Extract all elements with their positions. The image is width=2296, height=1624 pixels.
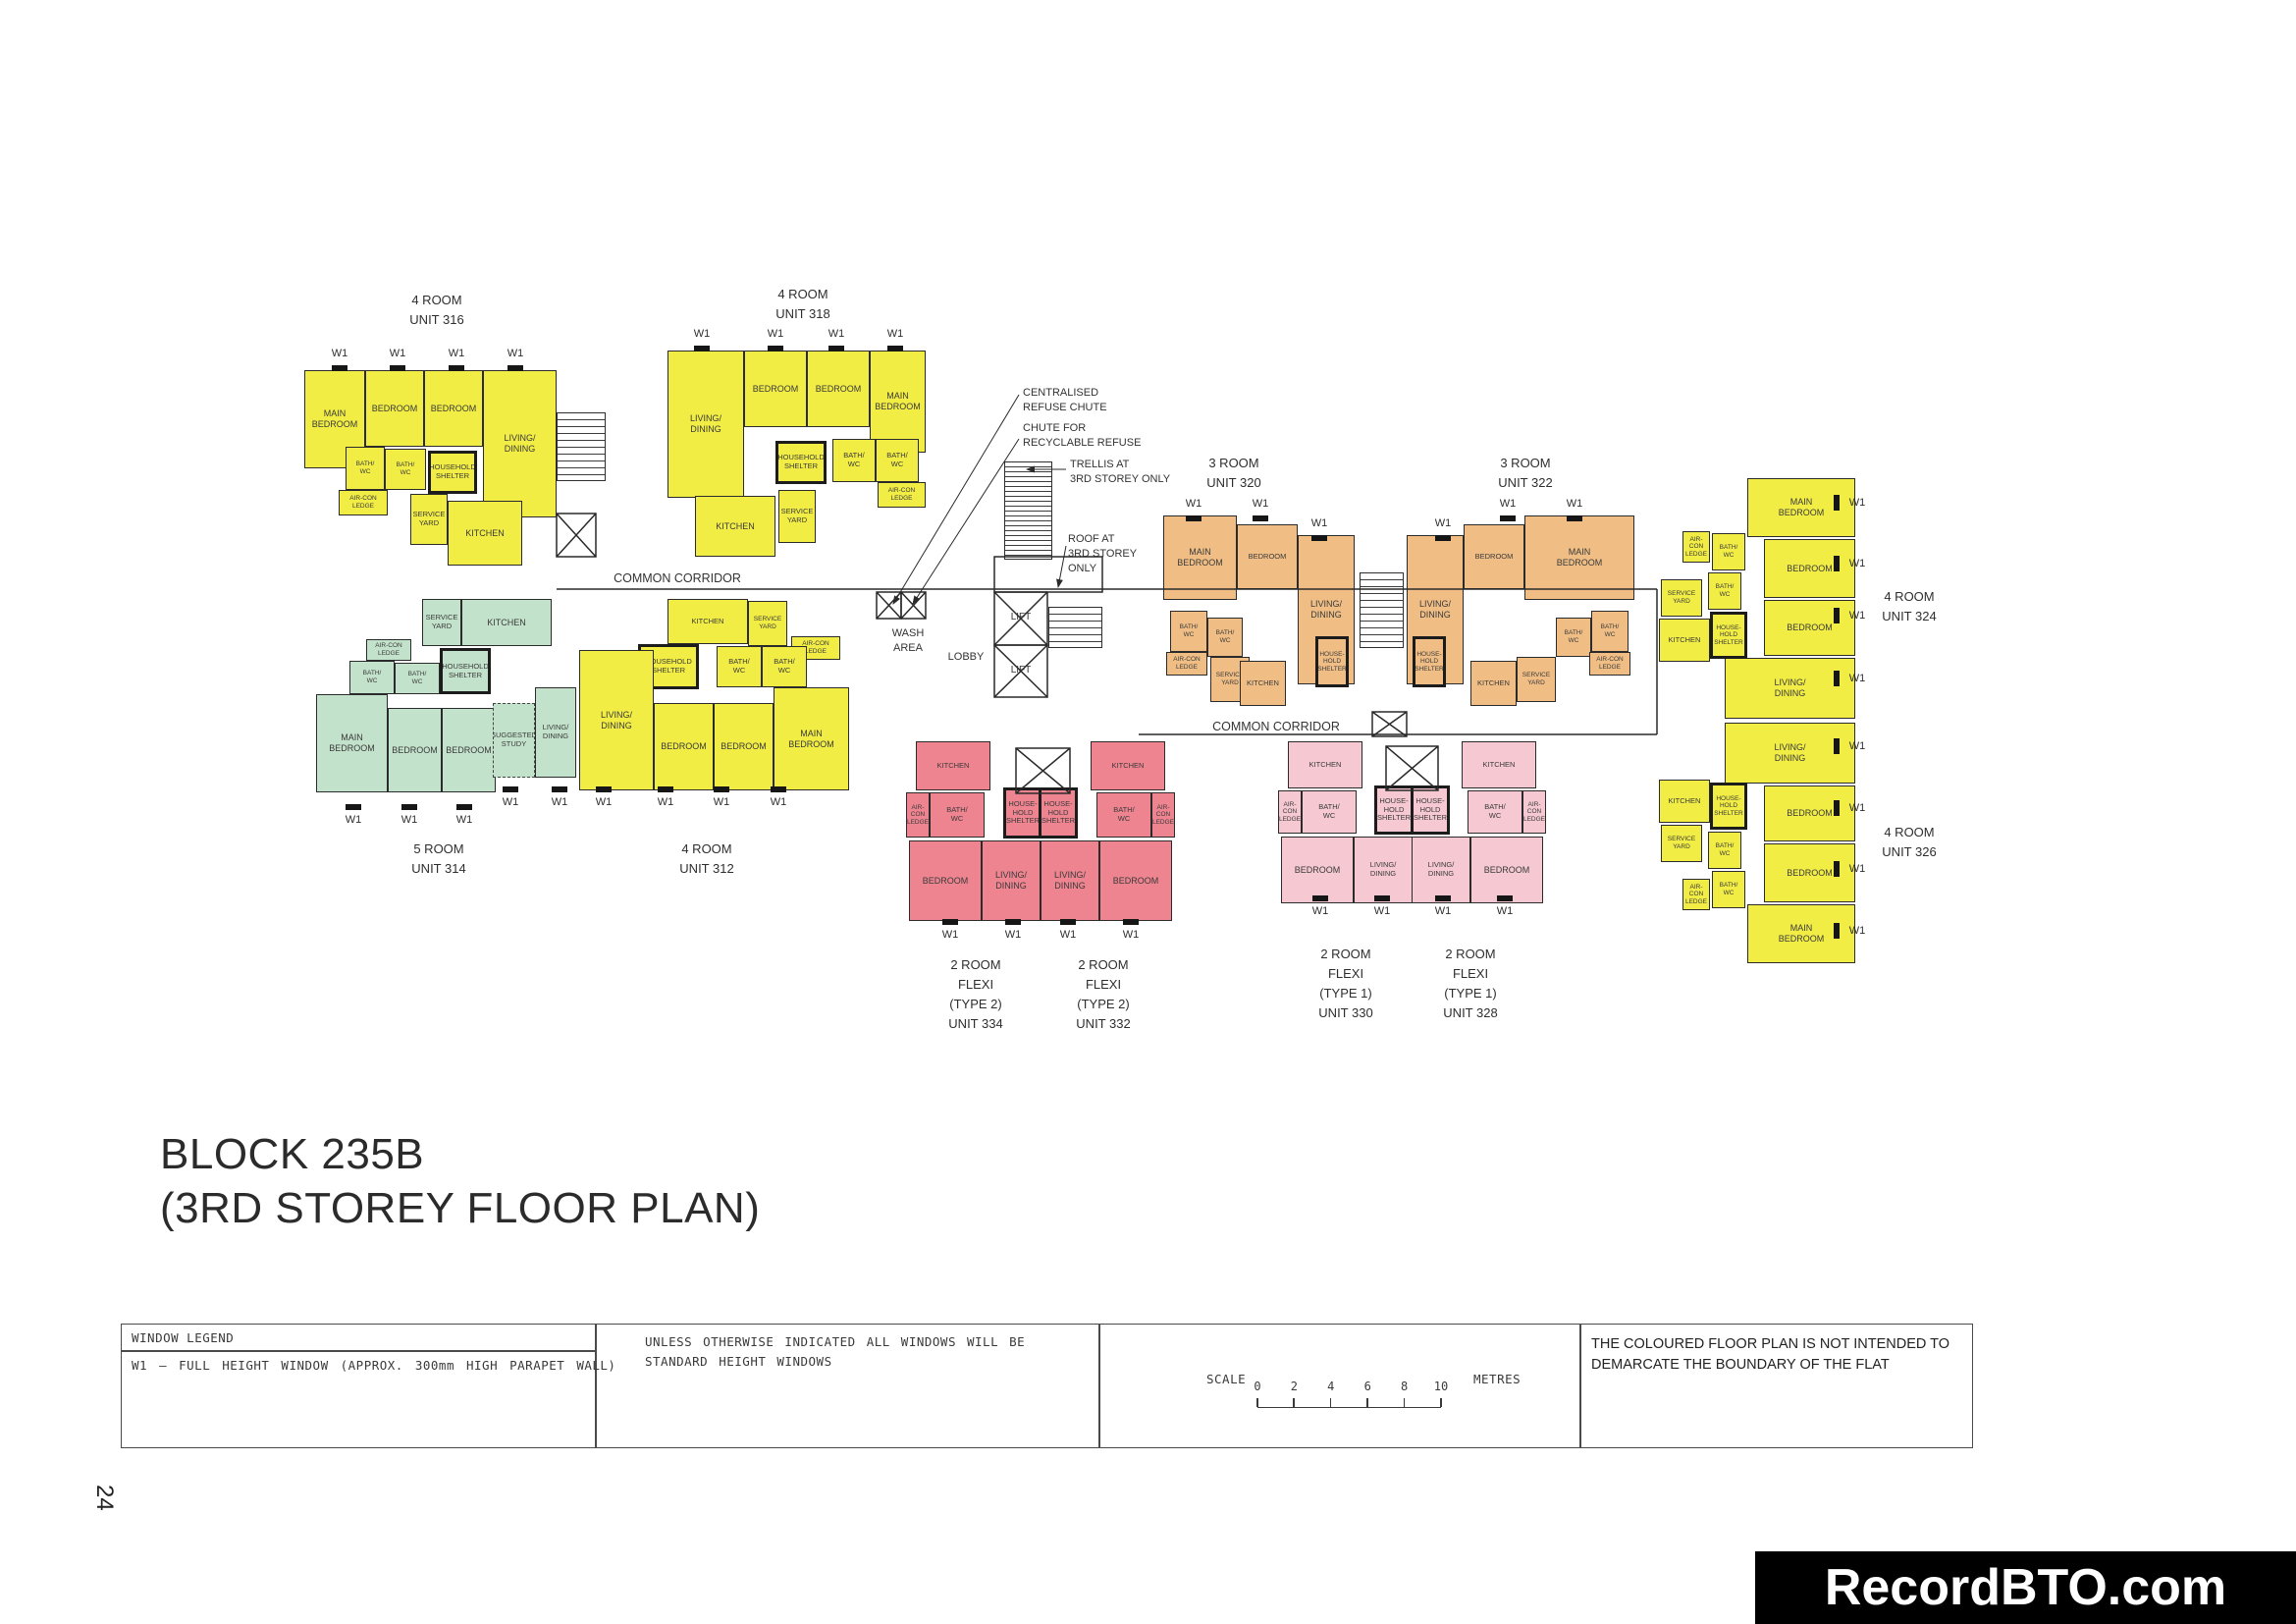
household-shelter-room: HOUSEHOLD SHELTER: [440, 648, 491, 694]
table-divider: [595, 1325, 597, 1447]
air-con-ledge-room: AIR- CON LEDGE: [906, 792, 930, 838]
bedroom-room: BEDROOM: [654, 703, 714, 790]
window-wall-tick: [390, 365, 405, 371]
w1-window-label: W1: [1123, 929, 1140, 941]
annotation-recyclable-refuse-chute: CHUTE FOR RECYCLABLE REFUSE: [1023, 421, 1141, 451]
bath-wc-room: BATH/ WC: [1556, 618, 1591, 657]
room-label: KITCHEN: [937, 762, 970, 771]
window-wall-tick: [1500, 515, 1516, 521]
bath-wc-room: BATH/ WC: [832, 439, 876, 482]
w1-window-label: W1: [1312, 905, 1329, 917]
service-yard-room: SERVICE YARD: [748, 601, 787, 646]
w1-window-label: W1: [771, 796, 787, 808]
window-wall-tick: [1834, 923, 1840, 939]
room-label: BATH/ WC: [1484, 803, 1506, 821]
service-shaft: [1386, 746, 1438, 790]
room-label: BATH/ WC: [1720, 882, 1738, 896]
w1-window-label: W1: [332, 348, 348, 359]
w1-window-label: W1: [346, 814, 362, 826]
room-label: HOUSE- HOLD SHELTER: [1414, 797, 1447, 824]
staircase: [1360, 572, 1404, 648]
w1-window-label: W1: [1849, 863, 1866, 875]
living-dining-room: LIVING/ DINING: [982, 840, 1041, 921]
window-wall-tick: [714, 786, 729, 792]
room-label: BATH/ WC: [728, 658, 750, 676]
window-wall-tick: [507, 365, 523, 371]
room-label: LIVING/ DINING: [1428, 861, 1455, 879]
room-label: SERVICE YARD: [781, 508, 814, 525]
room-label: LIVING/ DINING: [504, 433, 535, 454]
bath-wc-room: BATH/ WC: [762, 646, 807, 687]
annotation-trellis: TRELLIS AT 3RD STOREY ONLY: [1070, 458, 1170, 487]
window-legend-item: W1 – FULL HEIGHT WINDOW (APPROX. 300mm H…: [132, 1358, 615, 1373]
room-label: AIR-CON LEDGE: [1683, 536, 1709, 559]
bedroom-room: BEDROOM: [1464, 524, 1524, 589]
scale-tick-number: 4: [1327, 1380, 1334, 1393]
window-wall-tick: [1834, 608, 1840, 623]
scale-tick: [1330, 1398, 1332, 1407]
w1-window-label: W1: [1849, 740, 1866, 752]
w1-window-label: W1: [1497, 905, 1514, 917]
kitchen-room: KITCHEN: [1659, 780, 1710, 823]
scale-tick-number: 2: [1291, 1380, 1298, 1393]
room-label: BEDROOM: [1249, 553, 1287, 562]
room-label: HOUSE- HOLD SHELTER: [1377, 797, 1411, 824]
air-con-ledge-room: AIR- CON LEDGE: [1522, 790, 1546, 834]
house-hold-shelter-room: HOUSE- HOLD SHELTER: [1710, 783, 1747, 830]
unit-328-title: 2 ROOM FLEXI (TYPE 1) UNIT 328: [1443, 945, 1497, 1024]
scale-tick-number: 8: [1401, 1380, 1408, 1393]
main-bedroom-room: MAIN BEDROOM: [316, 694, 388, 792]
service-yard-room: SERVICE YARD: [1661, 825, 1702, 862]
unit-318-title: 4 ROOM UNIT 318: [775, 285, 829, 324]
room-label: KITCHEN: [1477, 679, 1510, 688]
room-label: LIVING/ DINING: [995, 870, 1027, 891]
window-wall-tick: [1834, 495, 1840, 511]
window-wall-tick: [1834, 738, 1840, 754]
service-shaft: [557, 514, 596, 557]
service-yard-room: SERVICE YARD: [422, 599, 461, 646]
scale-label: SCALE: [1206, 1372, 1246, 1386]
suggested-study-room: SUGGESTED STUDY: [493, 703, 535, 778]
room-label: BATH/ WC: [843, 452, 865, 469]
window-legend-title: WINDOW LEGEND: [132, 1330, 234, 1345]
scale-tick: [1256, 1398, 1258, 1407]
room-label: AIR-CON LEDGE: [1683, 884, 1709, 906]
window-wall-tick: [449, 365, 464, 371]
room-label: BEDROOM: [1787, 564, 1833, 574]
lift-label: LIFT: [1011, 664, 1032, 677]
bath-wc-room: BATH/ WC: [349, 661, 395, 694]
window-wall-tick: [1123, 919, 1139, 925]
window-wall-tick: [596, 786, 612, 792]
w1-window-label: W1: [1311, 517, 1328, 529]
room-label: SERVICE YARD: [426, 614, 458, 631]
bath-wc-room: BATH/ WC: [930, 792, 985, 838]
room-label: HOUSE- HOLD SHELTER: [1317, 651, 1347, 674]
room-label: HOUSE- HOLD SHELTER: [1041, 800, 1075, 827]
room-label: MAIN BEDROOM: [1177, 547, 1223, 568]
kitchen-room: KITCHEN: [1470, 661, 1517, 706]
kitchen-room: KITCHEN: [1288, 741, 1362, 788]
kitchen-room: KITCHEN: [1091, 741, 1165, 790]
annotation-roof: ROOF AT 3RD STOREY ONLY: [1068, 532, 1137, 576]
room-label: LIVING/ DINING: [543, 724, 569, 741]
main-bedroom-room: MAIN BEDROOM: [1524, 515, 1634, 600]
bath-wc-room: BATH/ WC: [876, 439, 919, 482]
service-yard-room: SERVICE YARD: [1661, 579, 1702, 617]
room-label: LIVING/ DINING: [690, 413, 721, 434]
w1-window-label: W1: [552, 796, 568, 808]
main-bedroom-room: MAIN BEDROOM: [1163, 515, 1237, 600]
scale-bar: SCALE METRES 0246810: [1098, 1325, 1579, 1447]
unit-324-title: 4 ROOM UNIT 324: [1882, 587, 1936, 626]
room-label: KITCHEN: [1309, 761, 1342, 770]
window-wall-tick: [1060, 919, 1076, 925]
windows-note: UNLESS OTHERWISE INDICATED ALL WINDOWS W…: [645, 1332, 1025, 1372]
window-wall-tick: [1253, 515, 1268, 521]
living-dining-room: LIVING/ DINING: [667, 351, 744, 498]
annotation-centralised-refuse-chute: CENTRALISED REFUSE CHUTE: [1023, 386, 1107, 415]
room-label: KITCHEN: [692, 618, 724, 626]
room-label: LIVING/ DINING: [1419, 599, 1451, 620]
w1-window-label: W1: [401, 814, 418, 826]
room-label: BATH/ WC: [1565, 629, 1583, 644]
house-hold-shelter-room: HOUSE- HOLD SHELTER: [1413, 636, 1446, 687]
air-con-ledge-room: AIR- CON LEDGE: [1278, 790, 1302, 834]
bedroom-room: BEDROOM: [1281, 837, 1354, 903]
room-label: KITCHEN: [465, 528, 505, 539]
table-divider: [1579, 1325, 1581, 1447]
bedroom-room: BEDROOM: [1764, 539, 1855, 598]
title-block-table: WINDOW LEGEND W1 – FULL HEIGHT WINDOW (A…: [121, 1324, 1973, 1448]
room-label: MAIN BEDROOM: [312, 408, 358, 429]
w1-window-label: W1: [449, 348, 465, 359]
scale-tick: [1404, 1398, 1406, 1407]
staircase: [557, 412, 606, 481]
bath-wc-room: BATH/ WC: [1170, 611, 1207, 652]
w1-window-label: W1: [1005, 929, 1022, 941]
room-label: BATH/ WC: [1716, 583, 1735, 598]
window-wall-tick: [1497, 895, 1513, 901]
air-con-ledge-room: AIR-CON LEDGE: [339, 490, 388, 515]
window-wall-tick: [456, 804, 472, 810]
window-wall-tick: [1186, 515, 1201, 521]
room-label: MAIN BEDROOM: [875, 391, 921, 411]
window-wall-tick: [1435, 535, 1451, 541]
room-label: BEDROOM: [1787, 808, 1833, 819]
w1-window-label: W1: [1849, 610, 1866, 622]
room-label: HOUSE- HOLD SHELTER: [1714, 795, 1743, 818]
w1-window-label: W1: [503, 796, 519, 808]
w1-window-label: W1: [1849, 925, 1866, 937]
w1-window-label: W1: [1849, 497, 1866, 509]
room-label: AIR-CON LEDGE: [349, 495, 376, 510]
main-bedroom-room: MAIN BEDROOM: [774, 687, 849, 790]
service-yard-room: SERVICE YARD: [1517, 657, 1556, 702]
room-label: BEDROOM: [1295, 865, 1341, 876]
living-dining-room: LIVING/ DINING: [483, 370, 557, 517]
room-label: BEDROOM: [392, 745, 438, 756]
room-label: BATH/ WC: [774, 658, 795, 676]
lobby-label: LOBBY: [948, 650, 985, 665]
room-label: BEDROOM: [923, 876, 969, 887]
room-label: BEDROOM: [721, 741, 767, 752]
room-label: LIVING/ DINING: [1774, 677, 1805, 698]
window-wall-tick: [768, 346, 783, 352]
living-dining-room: LIVING/ DINING: [1041, 840, 1099, 921]
room-label: LIVING/ DINING: [1774, 742, 1805, 763]
floor-plan-page: MAIN BEDROOMBEDROOMBEDROOMLIVING/ DINING…: [0, 0, 2296, 1624]
leader-recyclable-chute: [913, 439, 1019, 604]
w1-window-label: W1: [1060, 929, 1077, 941]
w1-window-label: W1: [1500, 498, 1517, 510]
unit-314-title: 5 ROOM UNIT 314: [411, 839, 465, 879]
kitchen-room: KITCHEN: [461, 599, 552, 646]
w1-window-label: W1: [1849, 802, 1866, 814]
household-shelter-room: HOUSEHOLD SHELTER: [428, 451, 477, 494]
room-label: BEDROOM: [1113, 876, 1159, 887]
room-label: AIR- CON LEDGE: [1523, 801, 1545, 824]
refuse-chute-block: [877, 592, 901, 619]
window-wall-tick: [887, 346, 903, 352]
w1-window-label: W1: [1374, 905, 1391, 917]
room-label: AIR- CON LEDGE: [1279, 801, 1301, 824]
room-label: MAIN BEDROOM: [788, 729, 834, 749]
bedroom-room: BEDROOM: [1237, 524, 1298, 589]
room-label: HOUSEHOLD SHELTER: [429, 463, 476, 481]
bedroom-room: BEDROOM: [365, 370, 424, 447]
coloured-plan-note: THE COLOURED FLOOR PLAN IS NOT INTENDED …: [1591, 1334, 1949, 1376]
room-label: LIVING/ DINING: [601, 710, 632, 731]
room-label: BATH/ WC: [1113, 806, 1135, 824]
room-label: BEDROOM: [661, 741, 707, 752]
window-wall-tick: [658, 786, 673, 792]
table-divider: [122, 1350, 595, 1352]
scale-tick: [1440, 1398, 1442, 1407]
window-wall-tick: [1435, 895, 1451, 901]
air-con-ledge-room: AIR-CON LEDGE: [1589, 652, 1630, 676]
scale-tick-number: 6: [1364, 1380, 1371, 1393]
room-label: BATH/ WC: [1180, 623, 1199, 638]
bath-wc-room: BATH/ WC: [1207, 618, 1243, 657]
bath-wc-room: BATH/ WC: [1468, 790, 1522, 834]
room-label: BEDROOM: [1787, 868, 1833, 879]
bedroom-room: BEDROOM: [714, 703, 774, 790]
house-hold-shelter-room: HOUSE- HOLD SHELTER: [1315, 636, 1349, 687]
window-wall-tick: [1834, 861, 1840, 877]
room-label: MAIN BEDROOM: [329, 732, 375, 753]
air-con-ledge-room: AIR-CON LEDGE: [1682, 531, 1710, 563]
room-label: SERVICE YARD: [1668, 590, 1695, 605]
scale-unit-label: METRES: [1473, 1372, 1521, 1386]
air-con-ledge-room: AIR- CON LEDGE: [1151, 792, 1175, 838]
living-dining-room: LIVING/ DINING: [1354, 837, 1413, 903]
living-dining-room: LIVING/ DINING: [1725, 658, 1855, 719]
bath-wc-room: BATH/ WC: [1708, 832, 1741, 869]
kitchen-room: KITCHEN: [1462, 741, 1536, 788]
w1-window-label: W1: [1186, 498, 1202, 510]
room-label: BATH/ WC: [1601, 623, 1620, 638]
scale-tick-number: 10: [1434, 1380, 1448, 1393]
room-label: KITCHEN: [1112, 762, 1145, 771]
bedroom-room: BEDROOM: [1764, 600, 1855, 656]
bath-wc-room: BATH/ WC: [1591, 611, 1629, 652]
room-label: KITCHEN: [487, 618, 526, 628]
w1-window-label: W1: [714, 796, 730, 808]
w1-window-label: W1: [456, 814, 473, 826]
room-label: BEDROOM: [816, 384, 862, 395]
living-dining-room: LIVING/ DINING: [579, 650, 654, 790]
house-hold-shelter-room: HOUSE- HOLD SHELTER: [1710, 612, 1747, 659]
room-label: KITCHEN: [1669, 636, 1701, 645]
room-label: SUGGESTED STUDY: [493, 731, 535, 749]
room-label: KITCHEN: [1247, 679, 1279, 688]
brand-watermark: RecordBTO.com: [1755, 1551, 2296, 1624]
unit-316-title: 4 ROOM UNIT 316: [409, 291, 463, 330]
unit-312-title: 4 ROOM UNIT 312: [679, 839, 733, 879]
service-shaft: [1372, 712, 1407, 736]
bath-wc-room: BATH/ WC: [1708, 572, 1741, 610]
window-wall-tick: [1834, 556, 1840, 571]
staircase: [1048, 607, 1102, 648]
window-wall-tick: [1374, 895, 1390, 901]
window-wall-tick: [1834, 800, 1840, 816]
unit-322-title: 3 ROOM UNIT 322: [1498, 454, 1552, 493]
bath-wc-room: BATH/ WC: [395, 663, 440, 694]
w1-window-label: W1: [1435, 517, 1452, 529]
w1-window-label: W1: [1849, 673, 1866, 684]
window-wall-tick: [1312, 895, 1328, 901]
room-label: BATH/ WC: [946, 806, 968, 824]
bedroom-room: BEDROOM: [909, 840, 982, 921]
room-label: BEDROOM: [1475, 553, 1514, 562]
w1-window-label: W1: [1435, 905, 1452, 917]
w1-window-label: W1: [694, 328, 711, 340]
room-label: BEDROOM: [753, 384, 799, 395]
wash-area-label: WASH AREA: [892, 626, 925, 656]
room-label: HOUSE- HOLD SHELTER: [1006, 800, 1040, 827]
window-wall-tick: [1311, 535, 1327, 541]
bedroom-room: BEDROOM: [744, 351, 807, 427]
room-label: AIR-CON LEDGE: [1596, 656, 1623, 671]
w1-window-label: W1: [390, 348, 406, 359]
room-label: MAIN BEDROOM: [1557, 547, 1603, 568]
w1-window-label: W1: [1849, 558, 1866, 569]
room-label: BATH/ WC: [356, 460, 375, 475]
kitchen-room: KITCHEN: [1240, 661, 1286, 706]
unit-320-title: 3 ROOM UNIT 320: [1206, 454, 1260, 493]
bath-wc-room: BATH/ WC: [385, 449, 426, 490]
room-label: BEDROOM: [446, 745, 492, 756]
kitchen-room: KITCHEN: [916, 741, 990, 790]
window-wall-tick: [1005, 919, 1021, 925]
leader-roof: [1058, 546, 1066, 587]
room-label: MAIN BEDROOM: [1779, 497, 1825, 517]
service-yard-room: SERVICE YARD: [778, 490, 816, 543]
window-wall-tick: [401, 804, 417, 810]
room-label: MAIN BEDROOM: [1779, 923, 1825, 944]
room-label: SERVICE YARD: [1668, 836, 1695, 850]
room-label: BATH/ WC: [1318, 803, 1340, 821]
house-hold-shelter-room: HOUSE- HOLD SHELTER: [1039, 787, 1078, 839]
scale-tick: [1366, 1398, 1368, 1407]
room-label: AIR- CON LEDGE: [1152, 804, 1174, 827]
window-wall-tick: [503, 786, 518, 792]
bedroom-room: BEDROOM: [388, 708, 442, 792]
scale-ruler: 0246810: [1257, 1397, 1441, 1408]
air-con-ledge-room: AIR-CON LEDGE: [878, 482, 926, 508]
bath-wc-room: BATH/ WC: [1712, 871, 1745, 908]
window-wall-tick: [346, 804, 361, 810]
kitchen-room: KITCHEN: [448, 501, 522, 566]
room-label: BEDROOM: [431, 404, 477, 414]
unit-330-title: 2 ROOM FLEXI (TYPE 1) UNIT 330: [1318, 945, 1372, 1024]
bath-wc-room: BATH/ WC: [1712, 533, 1745, 570]
bedroom-room: BEDROOM: [442, 708, 496, 792]
w1-window-label: W1: [942, 929, 959, 941]
room-label: SERVICE YARD: [413, 511, 446, 528]
unit-334-title: 2 ROOM FLEXI (TYPE 2) UNIT 334: [948, 955, 1002, 1035]
refuse-chute-block: [901, 592, 926, 619]
room-label: KITCHEN: [716, 521, 755, 532]
room-label: BATH/ WC: [363, 670, 382, 684]
room-label: BATH/ WC: [408, 671, 427, 685]
window-wall-tick: [942, 919, 958, 925]
kitchen-room: KITCHEN: [667, 599, 748, 644]
unit-332-title: 2 ROOM FLEXI (TYPE 2) UNIT 332: [1076, 955, 1130, 1035]
room-label: BEDROOM: [1484, 865, 1530, 876]
bedroom-room: BEDROOM: [1764, 843, 1855, 902]
w1-window-label: W1: [507, 348, 524, 359]
w1-window-label: W1: [658, 796, 674, 808]
w1-window-label: W1: [1253, 498, 1269, 510]
room-label: BATH/ WC: [886, 452, 908, 469]
room-label: BATH/ WC: [1216, 629, 1235, 644]
scale-tick: [1293, 1398, 1295, 1407]
bath-wc-room: BATH/ WC: [1302, 790, 1357, 834]
living-dining-room: LIVING/ DINING: [535, 687, 576, 778]
common-corridor-label: COMMON CORRIDOR: [1212, 719, 1340, 735]
room-label: AIR-CON LEDGE: [1173, 656, 1200, 671]
lift-label: LIFT: [1011, 611, 1032, 624]
room-label: LIVING/ DINING: [1310, 599, 1342, 620]
living-dining-room: LIVING/ DINING: [1412, 837, 1470, 903]
house-hold-shelter-room: HOUSE- HOLD SHELTER: [1411, 785, 1450, 835]
window-wall-tick: [694, 346, 710, 352]
room-label: SERVICE YARD: [1522, 672, 1550, 686]
room-label: BEDROOM: [372, 404, 418, 414]
air-con-ledge-room: AIR-CON LEDGE: [1166, 652, 1207, 676]
trellis-hatch: [1004, 461, 1052, 560]
bedroom-room: BEDROOM: [1470, 837, 1543, 903]
bath-wc-room: BATH/ WC: [717, 646, 762, 687]
room-label: BATH/ WC: [1716, 842, 1735, 857]
service-yard-room: SERVICE YARD: [410, 494, 448, 545]
window-wall-tick: [828, 346, 844, 352]
room-label: LIVING/ DINING: [1054, 870, 1086, 891]
room-label: BATH/ WC: [397, 461, 415, 476]
main-bedroom-room: MAIN BEDROOM: [870, 351, 926, 453]
air-con-ledge-room: AIR-CON LEDGE: [366, 639, 411, 661]
room-label: AIR- CON LEDGE: [907, 804, 929, 827]
w1-window-label: W1: [828, 328, 845, 340]
bath-wc-room: BATH/ WC: [1096, 792, 1151, 838]
w1-window-label: W1: [768, 328, 784, 340]
window-wall-tick: [771, 786, 786, 792]
window-wall-tick: [1834, 671, 1840, 686]
page-number: 24: [90, 1485, 118, 1511]
